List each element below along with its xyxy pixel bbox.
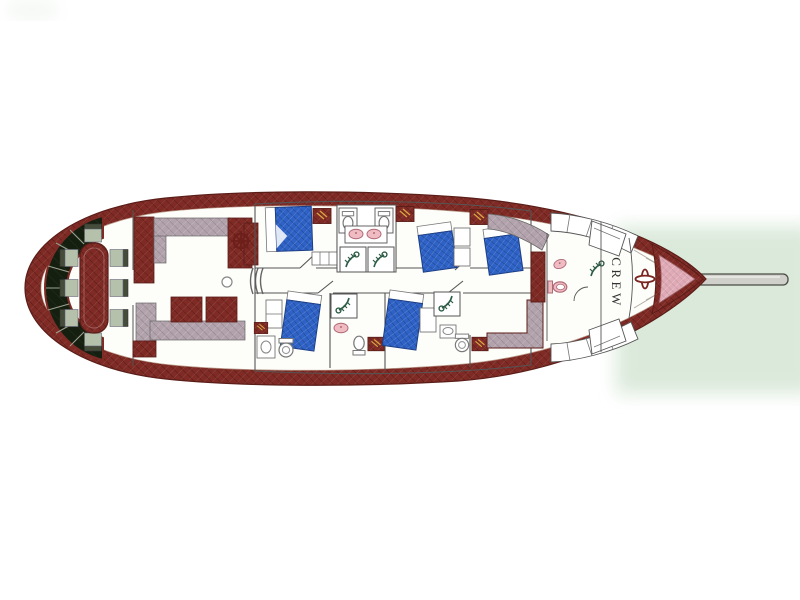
toilet-icon — [353, 336, 365, 355]
double-bed — [417, 222, 457, 272]
bed-mattress — [275, 206, 313, 251]
cabinet — [454, 248, 470, 266]
dining-chair — [110, 280, 128, 297]
vanity-red — [368, 337, 384, 351]
dining-chair — [60, 280, 78, 297]
salon-cushion — [206, 297, 237, 322]
vanity-red — [472, 337, 488, 351]
salon-sofa-top — [154, 218, 230, 236]
washbasin-icon — [367, 229, 381, 239]
double-bed — [382, 290, 423, 350]
corner-smudge — [8, 4, 56, 16]
dining-chair — [85, 333, 102, 351]
dining-chair — [110, 250, 128, 267]
salon-sofa-left — [134, 217, 154, 283]
dining-chair — [85, 224, 102, 242]
bulkhead — [531, 252, 545, 302]
deck-plan-canvas: CREW — [0, 0, 800, 600]
salon-cushion — [171, 297, 202, 322]
vanity-red — [470, 210, 488, 225]
shower-stall — [340, 247, 366, 272]
vanity-red — [396, 207, 414, 222]
crew-label: CREW — [609, 257, 624, 309]
cabinet — [312, 252, 338, 265]
salon-table — [222, 277, 232, 287]
double-bed — [265, 206, 313, 252]
salon-sofa-bottom — [150, 321, 245, 340]
bathroom-center — [337, 205, 396, 272]
salon-sofa-lower-left-end — [133, 341, 156, 357]
dining-chair — [60, 250, 78, 267]
deck-plan-page: CREW — [0, 0, 800, 600]
dining-chair — [60, 310, 78, 327]
toilet-icon — [548, 281, 567, 293]
vanity-red — [313, 209, 331, 224]
washbasin-icon — [349, 229, 363, 239]
helm-wheel-icon — [231, 231, 251, 251]
washbasin-icon — [334, 323, 348, 333]
helm-console — [244, 223, 258, 265]
toilet-icon — [455, 334, 468, 352]
toilet-icon — [279, 339, 293, 358]
dining-chair — [110, 310, 128, 327]
cabinet — [454, 228, 470, 246]
vanity-red — [254, 322, 268, 333]
shower-stall — [368, 247, 394, 272]
